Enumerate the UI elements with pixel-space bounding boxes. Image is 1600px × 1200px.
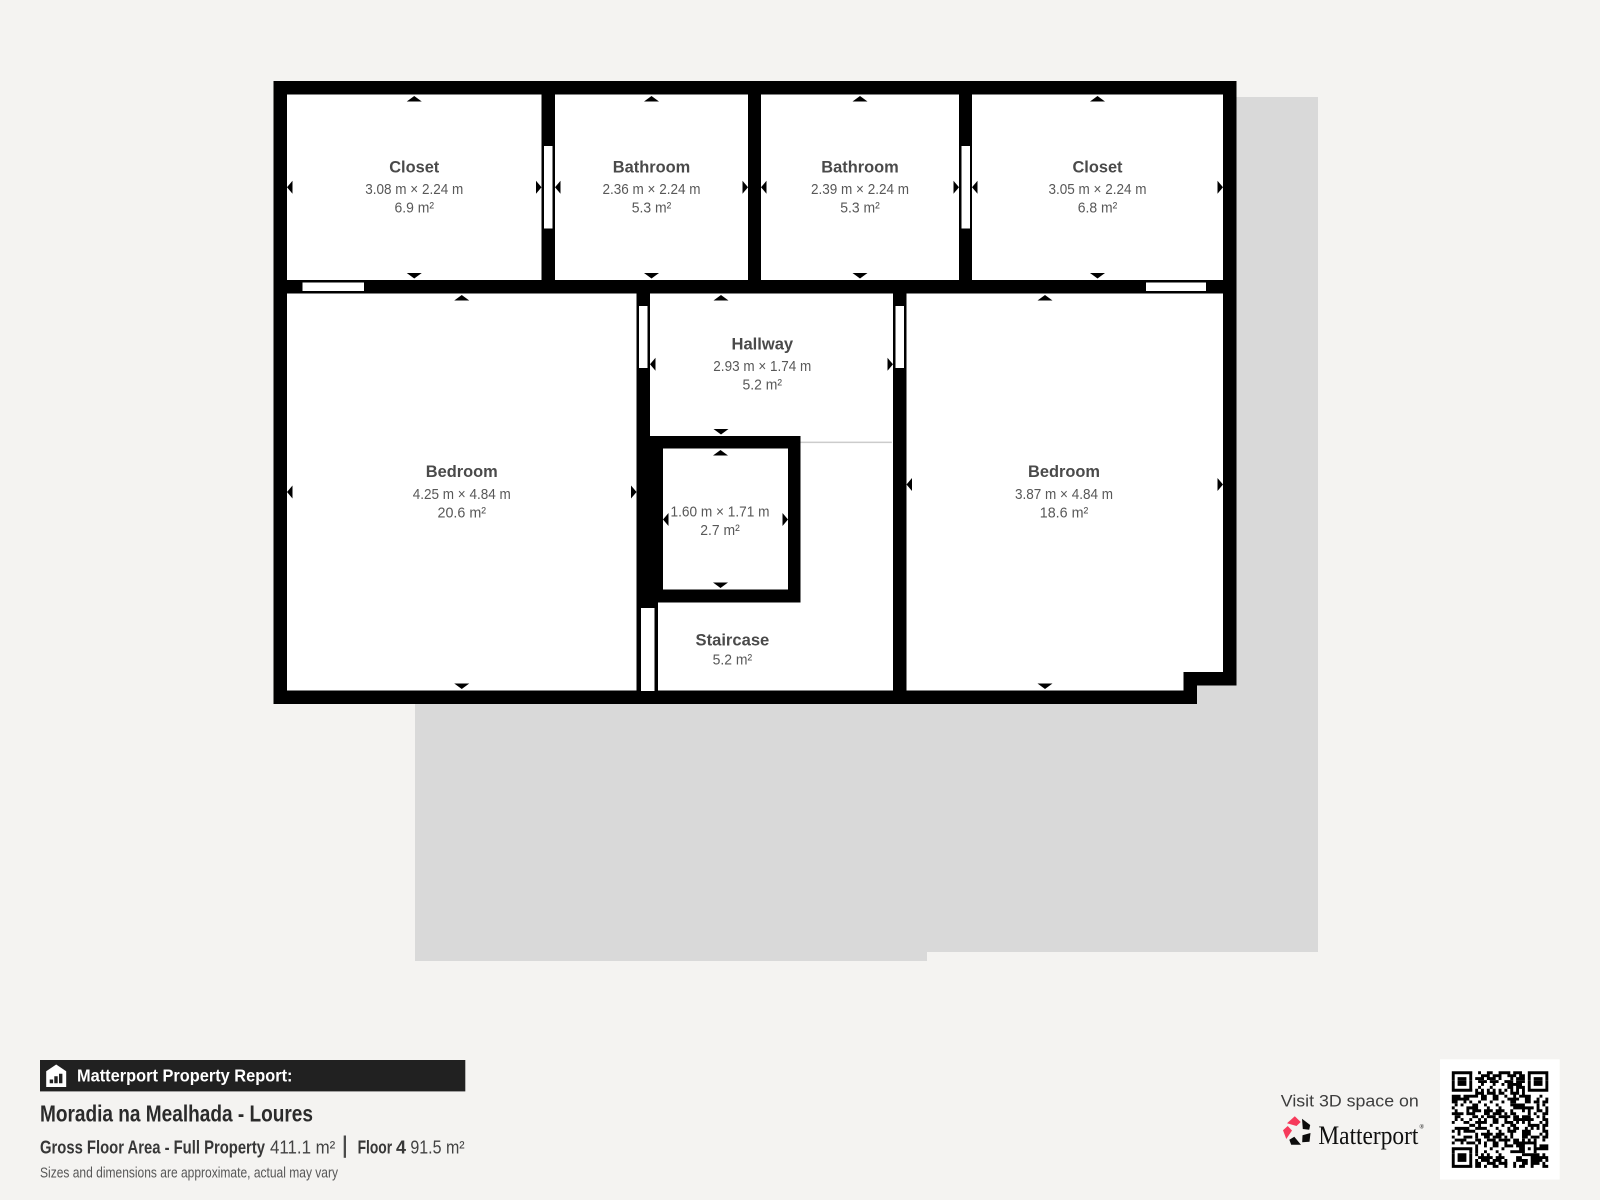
svg-text:Bathroom: Bathroom [821,157,899,176]
svg-text:Floor: Floor [358,1138,393,1158]
svg-text:5.3 m²: 5.3 m² [632,200,672,217]
svg-text:Hallway: Hallway [732,334,794,353]
svg-text:4.25 m × 4.84 m: 4.25 m × 4.84 m [413,486,511,503]
svg-text:5.2 m²: 5.2 m² [743,377,783,394]
svg-text:3.87 m × 4.84 m: 3.87 m × 4.84 m [1015,486,1113,503]
svg-text:Bedroom: Bedroom [426,462,498,481]
svg-text:6.8 m²: 6.8 m² [1078,200,1118,217]
svg-text:4: 4 [396,1138,406,1158]
svg-text:Bedroom: Bedroom [1028,462,1100,481]
svg-text:Moradia na Mealhada - Loures: Moradia na Mealhada - Loures [40,1100,313,1126]
svg-text:Sizes and dimensions are appro: Sizes and dimensions are approximate, ac… [40,1165,338,1182]
svg-text:2.36 m × 2.24 m: 2.36 m × 2.24 m [603,181,701,198]
svg-text:Visit 3D space on: Visit 3D space on [1281,1091,1419,1110]
svg-text:5.2 m²: 5.2 m² [713,651,753,668]
svg-text:Closet: Closet [1073,157,1123,176]
svg-text:6.9 m²: 6.9 m² [395,200,435,217]
svg-text:1.60 m × 1.71 m: 1.60 m × 1.71 m [671,504,770,521]
svg-text:Staircase: Staircase [696,630,770,649]
svg-text:Closet: Closet [389,157,439,176]
svg-text:2.39 m × 2.24 m: 2.39 m × 2.24 m [811,181,909,198]
svg-text:5.3 m²: 5.3 m² [840,200,880,217]
svg-text:18.6 m²: 18.6 m² [1040,504,1089,521]
svg-text:2.93 m × 1.74 m: 2.93 m × 1.74 m [713,358,811,375]
svg-text:®: ® [1419,1124,1424,1131]
svg-text:91.5 m²: 91.5 m² [410,1138,464,1158]
svg-text:20.6 m²: 20.6 m² [438,504,487,521]
svg-text:Bathroom: Bathroom [613,157,691,176]
svg-text:Matterport Property Report:: Matterport Property Report: [77,1066,293,1086]
svg-text:2.7 m²: 2.7 m² [700,522,740,539]
svg-text:411.1 m²: 411.1 m² [270,1138,335,1158]
svg-text:3.08 m × 2.24 m: 3.08 m × 2.24 m [365,181,463,198]
svg-text:3.05 m × 2.24 m: 3.05 m × 2.24 m [1049,181,1147,198]
svg-text:Gross Floor Area - Full Proper: Gross Floor Area - Full Property [40,1138,265,1158]
svg-text:Matterport: Matterport [1318,1121,1419,1150]
